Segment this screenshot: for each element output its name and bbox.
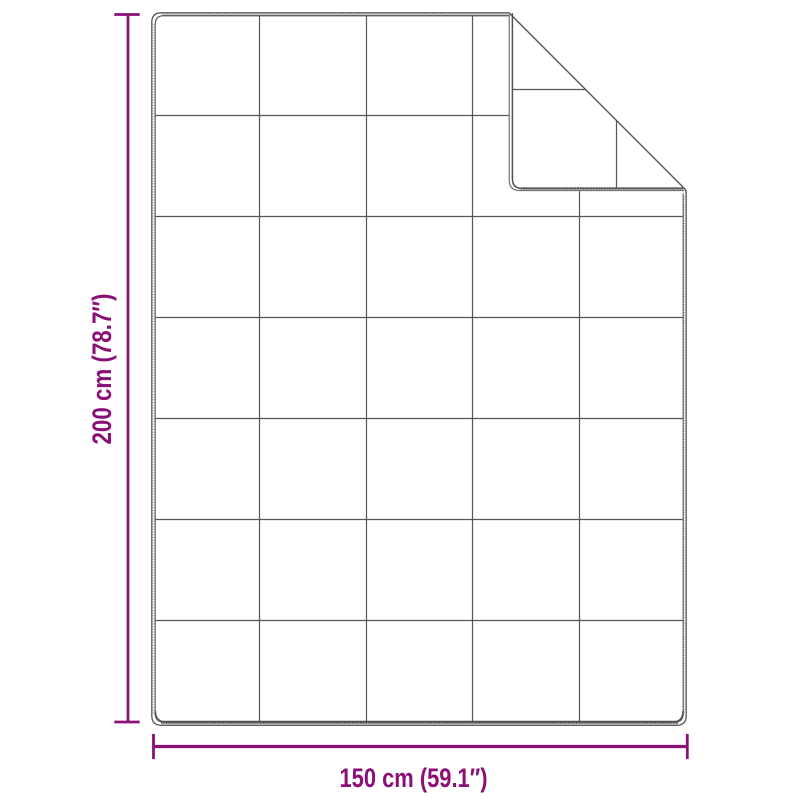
- svg-text:150 cm (59.1″): 150 cm (59.1″): [340, 763, 488, 793]
- svg-text:200 cm (78.7″): 200 cm (78.7″): [87, 294, 117, 445]
